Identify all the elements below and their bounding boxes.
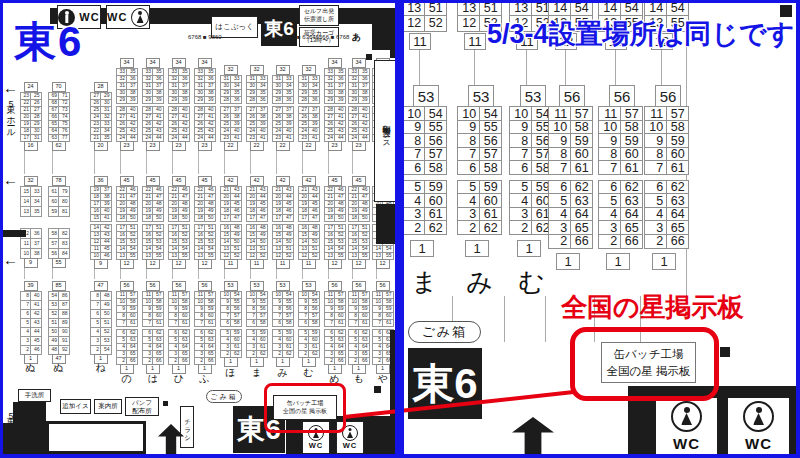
booth-cell-pair: 1747 <box>220 214 241 221</box>
booth-cell-pair: 2939 <box>194 96 215 103</box>
booth-header-cell: 34 <box>120 58 134 68</box>
booth-cell-pair: 2444 <box>168 134 189 141</box>
row-kana-label: の <box>116 372 137 386</box>
booth-column-section: 4221432044194518461747164815491450135112… <box>298 176 319 269</box>
booth-cell-pair: 5981 <box>48 206 69 216</box>
booth-cell: 12 <box>457 15 480 32</box>
booth-header-cell: 53 <box>468 85 494 107</box>
booth-cell: 7 <box>548 160 571 175</box>
booth-header-cell: 45 <box>120 176 134 186</box>
booth-cell: 61 <box>620 160 643 175</box>
booth-header-cell: 56 <box>120 281 134 291</box>
booth-cell-pair: 658 <box>458 161 501 175</box>
hall5-label: 東5ホール <box>4 98 17 134</box>
booth-footer-cell: 22 <box>224 141 238 151</box>
booth-cell: 46 <box>30 345 42 355</box>
booth-cell-pair: 1054 <box>458 107 501 121</box>
booth-cell-pair: 559 <box>403 181 446 195</box>
booth-header-cell: 70 <box>52 82 66 92</box>
booth-column-section: 3433353236313730382939284027412642254324… <box>116 58 137 151</box>
booth-header-cell: 28 <box>94 82 108 92</box>
booth-cell: 7 <box>644 160 667 175</box>
booth-cell: 58 <box>424 160 447 175</box>
row-kana-label: ひ <box>168 372 189 386</box>
booth-cell-pair: 262 <box>246 350 267 357</box>
booth-cell-pair: 662 <box>599 181 642 195</box>
west-arrow-1: ← <box>3 80 18 95</box>
star-board-callout: 全国の星掲示板 <box>561 290 744 325</box>
booth-column-section: 56115710589598607616625634643652661 <box>348 281 369 374</box>
booth-cell-pair: 2444 <box>116 134 137 141</box>
booth-header-cell: 56 <box>609 85 635 107</box>
booth-cell: 62 <box>424 220 447 235</box>
column-connector-line <box>565 49 566 85</box>
booth-header-cell: 34 <box>146 58 160 68</box>
column-connector-line <box>419 49 420 85</box>
booth-cell-pair: 1252 <box>403 16 446 31</box>
booth-cell-pair: 955 <box>510 121 553 135</box>
booth-cell-pair: 2341 <box>220 134 241 141</box>
booth-column-section: 5310549558567576585594603612621 <box>220 281 241 367</box>
booth-cell-pair: 959 <box>599 134 642 148</box>
booth-column-section: 4522462147204819491850175116521553145413… <box>324 176 345 269</box>
booth-cell-pair: 658 <box>510 161 553 175</box>
booth-footer-cell: 12 <box>172 259 186 269</box>
booth-column-section: 4221432044194518461747164815491450135112… <box>272 176 293 269</box>
booth-cell: 66 <box>666 234 689 249</box>
booth-cell-pair: 1355 <box>194 252 215 259</box>
row-kana-label: も <box>348 372 369 386</box>
column-connector-line <box>474 49 475 85</box>
booth-single-cell: 1 <box>556 253 580 270</box>
booth-cell-pair: 959 <box>549 134 592 148</box>
booth-footer-cell: 11 <box>224 259 238 269</box>
booth-cell-pair: 5684 <box>48 248 69 258</box>
booth-cell-pair: 1058 <box>549 121 592 135</box>
booth-header-cell: 32 <box>276 65 290 75</box>
booth-cell-pair: 365 <box>599 221 642 235</box>
booth-cell: 2 <box>457 220 480 235</box>
booth-cell: 62 <box>479 220 502 235</box>
booth-column-section: 56115710589598607616625634643652661 <box>168 281 189 374</box>
booth-cell-pair: 1157 <box>549 107 592 121</box>
booth-cell-pair: 460 <box>458 194 501 208</box>
booth-single-cell: 11 <box>409 33 431 50</box>
booth-cell-pair: 2836 <box>298 96 319 103</box>
booth-cell: 6 <box>457 160 480 175</box>
pillar-dot <box>366 54 372 60</box>
booth-cell-pair: 761 <box>549 161 592 175</box>
pillar-dot <box>163 401 168 406</box>
booth-footer-cell: 12 <box>198 259 212 269</box>
booth-cell-pair: 563 <box>549 194 592 208</box>
booth-cell-pair: 6179 <box>48 186 69 196</box>
row-kana-label: ぬ <box>48 361 69 375</box>
booth-cell: 61 <box>666 160 689 175</box>
booth-cell-pair: 254 <box>90 345 111 354</box>
bottom-left-wall-b <box>0 423 46 454</box>
booth-footer-cell: 22 <box>250 141 264 151</box>
booth-footer-cell: 12 <box>352 259 366 269</box>
booth-column-section: 7861796080598158825783568455 <box>48 176 69 268</box>
booth-cell-pair: 658 <box>403 161 446 175</box>
booth-cell-pair: 2135 <box>90 134 111 141</box>
section-connector-line <box>328 150 329 174</box>
booth-cell-pair: 1058 <box>599 121 642 135</box>
pillar-dot <box>720 347 730 357</box>
booth-column-section: 4522462147204819491850175116521553145413… <box>348 176 369 269</box>
booth-cell-pair: 1850 <box>324 214 345 221</box>
booth-cell: 92 <box>58 345 70 355</box>
booth-cell-pair: 1434 <box>20 196 41 206</box>
booth-column-section: 3433353236313730382939284027412642254324… <box>142 58 163 151</box>
booth-column-section: 4221432044194518461747164815491450135112… <box>246 176 267 269</box>
booth-cell-pair: 856 <box>403 134 446 148</box>
booth-cell-pair: 246 <box>20 345 41 354</box>
entrance-arrow-right <box>512 417 554 454</box>
booth-cell-pair: 262 <box>458 221 501 235</box>
booth-cell-pair: 2836 <box>272 96 293 103</box>
booth-cell-pair: 761 <box>645 161 688 175</box>
booth-column-section: 3231333034293528362737263825392440234122 <box>220 65 241 151</box>
booth-header-cell: 53 <box>302 281 316 291</box>
booth-column-section: 3231333034293528362737263825392440234122 <box>272 65 293 151</box>
booth-column-section: 4221432044194518461747164815491450135112… <box>220 176 241 269</box>
booth-header-cell: 34 <box>352 58 366 68</box>
west-arrow-3: ← <box>3 252 18 267</box>
booth-single-cell: 11 <box>464 33 486 50</box>
booth-cell-pair: 563 <box>645 194 688 208</box>
booth-column-section: 56115710589598607616625634643652661 <box>142 281 163 374</box>
booth-cell-pair: 1355 <box>168 252 189 259</box>
booth-cell-pair: 761 <box>116 319 137 326</box>
hakobukku-label: はこぶっく <box>215 22 253 32</box>
booth-cell: 6 <box>402 160 425 175</box>
booth-cell-pair: 662 <box>645 181 688 195</box>
booth-cell: 61 <box>570 160 593 175</box>
booth-header-cell: 53 <box>224 281 238 291</box>
booth-header-cell: 45 <box>352 176 366 186</box>
booth-cell-pair: 2939 <box>348 96 369 103</box>
pamphlet-desk: パンフ 配布所 <box>125 397 159 416</box>
booth-footer-cell: 12 <box>120 259 134 269</box>
setup-note: 5/3-4設置場所は同じです <box>487 16 794 52</box>
top-booth-strip-left: 6768 ■ 9860 <box>188 34 222 40</box>
wc-label: WC <box>309 441 324 450</box>
booth-header-cell: 78 <box>52 176 66 186</box>
self-shipping-desk: セルフ出発 伝票渡し所 <box>299 5 339 26</box>
section-connector-line <box>276 150 277 174</box>
booth-cell-pair: 1046 <box>90 252 111 259</box>
booth-footer-cell: 11 <box>276 259 290 269</box>
booth-cell-pair: 1454 <box>645 1 688 16</box>
booth-header-cell: 32 <box>250 65 264 75</box>
booth-cell-pair: 266 <box>549 235 592 249</box>
booth-header-cell: 56 <box>172 281 186 291</box>
corridor-room <box>46 421 146 454</box>
booth-cell-pair: 1335 <box>20 206 41 216</box>
booth-cell-pair: 361 <box>403 208 446 222</box>
booth-cell-pair: 1137 <box>20 238 41 248</box>
booth-cell-pair: 365 <box>645 221 688 235</box>
extra-chairs-label: 追加イス <box>62 402 88 411</box>
frame-right <box>796 0 800 458</box>
booth-cell-pair: 559 <box>510 181 553 195</box>
booth-cell-pair: 563 <box>599 194 642 208</box>
west-arrow-2: ← <box>3 172 18 187</box>
booth-cell-pair: 1252 <box>272 252 293 259</box>
pamphlet-line1: パンフ <box>132 399 152 407</box>
print-material-booth: 印刷物搬入ブース <box>374 60 396 202</box>
booth-cell-pair: 464 <box>645 208 688 222</box>
section-connector-line <box>352 150 353 174</box>
booth-header-cell: 53 <box>520 85 546 107</box>
booth-cell-pair: 1747 <box>298 214 319 221</box>
booth-cell: 7 <box>598 160 621 175</box>
wc-room-right-1: WC <box>656 398 717 454</box>
booth-cell-pair: 5882 <box>48 228 69 238</box>
top-booth-strip-right: 8182 ■ 63646566 ■ 6768 <box>282 34 349 40</box>
booth-column-body: 10549558567576585594603612621み <box>458 107 501 300</box>
booth-cell-pair: 757 <box>458 148 501 162</box>
highlight-frame-left <box>264 383 346 433</box>
booth-footer-cell: 12 <box>146 259 160 269</box>
row-kana-label: み <box>272 366 293 380</box>
section-connector-line <box>146 150 147 174</box>
booth-footer-cell: 9 <box>94 259 108 269</box>
booth-column-section: 5310549558567576585594603612621 <box>272 281 293 367</box>
trash-label: ごみ箱 <box>422 323 468 341</box>
booth-cell-pair: 266 <box>324 357 345 364</box>
booth-column-section: 3619371838173916401541144213431244114510… <box>90 176 111 269</box>
booth-cell-pair: 1252 <box>246 252 267 259</box>
booth-header-cell: 34 <box>328 58 342 68</box>
wc-room-right-2: WC <box>728 398 789 454</box>
booth-footer-cell: 23 <box>328 141 342 151</box>
booth-column-section: 56115710589598607616625634643652661 <box>116 281 137 374</box>
booth-column-section: 56115710589598607616625634643652661 <box>324 281 345 374</box>
booth-cell-pair: 856 <box>510 134 553 148</box>
row-kana-label: み <box>458 265 501 300</box>
booth-cell-pair: 1747 <box>246 214 267 221</box>
row-kana-label: ね <box>90 361 111 375</box>
booth-cell-pair: 955 <box>458 121 501 135</box>
pamphlet-line2: 配布所 <box>132 407 152 415</box>
booth-header-cell: 85 <box>52 281 66 291</box>
booth-cell-pair: 1533 <box>20 186 41 196</box>
booth-footer-cell: 11 <box>302 259 316 269</box>
booth-footer-cell: 16 <box>24 141 38 151</box>
booth-column-section: 478487496505514523532541 <box>90 281 111 364</box>
wc-label: WC <box>745 435 772 452</box>
booth-cell-pair: 464 <box>599 208 642 222</box>
booth-cell-pair: 6377 <box>48 134 69 141</box>
booth-cell-pair: 2836 <box>246 96 267 103</box>
booth-cell-pair: 856 <box>458 134 501 148</box>
booth-single-cell: 1 <box>410 240 434 257</box>
booth-cell-pair: 262 <box>272 350 293 357</box>
booth-column-section: 3231333034293528362737263825392440234122 <box>246 65 267 151</box>
booth-cell-pair: 1252 <box>298 252 319 259</box>
booth-header-cell: 42 <box>302 176 316 186</box>
booth-cell-pair: 266 <box>645 235 688 249</box>
row-kana-label: ま <box>246 366 267 380</box>
row-kana-label: ま <box>403 265 446 300</box>
booth-header-cell: 45 <box>172 176 186 186</box>
booth-column-top: 13511252 <box>403 1 446 31</box>
self-shipping-line2: 伝票渡し所 <box>304 16 334 23</box>
booth-cell-pair: 1351 <box>458 1 501 16</box>
booth-cell-pair: 1054 <box>510 107 553 121</box>
booth-cell-pair: 262 <box>403 221 446 235</box>
booth-cell-pair: 1731 <box>20 134 41 141</box>
booth-header-cell: 47 <box>94 281 108 291</box>
booth-column-section: 3433353236313730382939284027412642254324… <box>348 58 369 151</box>
booth-cell-pair: 1054 <box>403 107 446 121</box>
booth-cell-pair: 2341 <box>246 134 267 141</box>
booth-column-section: 3433353236313730382939284027412642254324… <box>194 58 215 151</box>
booth-cell: 2 <box>644 234 667 249</box>
booth-header-cell: 56 <box>146 281 160 291</box>
booth-header-cell: 56 <box>198 281 212 291</box>
booth-cell-pair: 1850 <box>348 214 369 221</box>
booth-cell-pair: 460 <box>510 194 553 208</box>
booth-cell-pair: 1351 <box>510 1 553 16</box>
booth-cell-pair: 266 <box>599 235 642 249</box>
hall-sign-top: 東6 <box>261 12 297 46</box>
booth-cell-pair: 1058 <box>645 121 688 135</box>
trash-area-right: ごみ箱 <box>408 321 481 343</box>
column-connector-line <box>661 49 662 85</box>
highlight-frame-right <box>570 327 719 401</box>
row-kana-label: む <box>510 265 553 300</box>
booth-cell-pair: 1355 <box>372 252 393 259</box>
booth-column-section: 24232522262127202819291830173116 <box>20 82 41 151</box>
booth-footer-cell: 12 <box>328 259 342 269</box>
booth-header-cell: 45 <box>328 176 342 186</box>
booth-column-body: 10549558567576585594603612621む <box>510 107 553 300</box>
flyer-rack: チラシ <box>180 406 194 448</box>
booth-column-body: 115710589598607616625634643652661 <box>599 107 642 270</box>
booth-cell: 2 <box>598 234 621 249</box>
booth-cell-pair: 662 <box>549 181 592 195</box>
booth-cell-pair: 2939 <box>168 96 189 103</box>
booth-cell-pair: 761 <box>599 161 642 175</box>
booth-column-section: 5310549558567576585594603612621 <box>246 281 267 367</box>
frame-left <box>0 0 3 458</box>
booth-header-cell: 53 <box>276 281 290 291</box>
booth-cell-pair: 262 <box>220 350 241 357</box>
booth-cell-pair: 2444 <box>348 134 369 141</box>
booth-cell-pair: 2836 <box>220 96 241 103</box>
booth-column-section: 3231333034293528362737263825392440234122 <box>298 65 319 151</box>
booth-column-section: 321533143413351236113710389 <box>20 176 41 268</box>
booth-column-body: 10549558567576585594603612621ま <box>403 107 446 300</box>
booth-cell: 66 <box>620 234 643 249</box>
booth-cell-pair: 266 <box>142 357 163 364</box>
information-label: 案内所 <box>98 402 118 411</box>
booth-cell-pair: 2341 <box>272 134 293 141</box>
booth-cell-pair: 2444 <box>194 134 215 141</box>
booth-column-section: 4522462147204819491850175116521553145413… <box>168 176 189 269</box>
column-connector-line <box>526 49 527 85</box>
booth-cell-pair: 761 <box>372 319 393 326</box>
booth-cell: 12 <box>402 15 425 32</box>
booth-cell: 38 <box>30 248 42 259</box>
booth-single-cell: 1 <box>606 253 630 270</box>
booth-footer-cell: 22 <box>276 141 290 151</box>
booth-cell-pair: 860 <box>645 148 688 162</box>
booth-footer-cell: 23 <box>198 141 212 151</box>
booth-header-cell: 42 <box>224 176 238 186</box>
booth-cell-pair: 266 <box>348 357 369 364</box>
booth-single-cell: 1 <box>652 253 676 270</box>
booth-column-body: 115710589598607616625634643652661 <box>645 107 688 270</box>
booth-footer-cell: 11 <box>250 259 264 269</box>
booth-header-cell: 45 <box>198 176 212 186</box>
booth-cell: 66 <box>570 234 593 249</box>
booth-column-section: 70697168726773667465756476637762 <box>48 82 69 151</box>
booth-cell-pair: 1038 <box>20 248 41 258</box>
booth-cell: 2 <box>402 220 425 235</box>
wc-label: WC <box>343 441 358 450</box>
booth-cell-pair: 658 <box>246 319 267 326</box>
booth-cell-pair: 1850 <box>194 214 215 221</box>
booth-column-section: 4522462147204819491850175116521553145413… <box>194 176 215 269</box>
booth-cell-pair: 262 <box>510 221 553 235</box>
aisle-gap <box>48 216 69 228</box>
aisle-guide-line <box>545 296 546 342</box>
print-material-label: 印刷物搬入ブース <box>380 118 391 144</box>
booth-cell-pair: 266 <box>194 357 215 364</box>
trash-label: ごみ箱 <box>210 392 237 402</box>
booth-footer-cell: 22 <box>302 141 316 151</box>
booth-cell: 84 <box>58 248 70 259</box>
booth-footer-cell: 12 <box>376 259 390 269</box>
booth-cell-pair: 2341 <box>298 134 319 141</box>
booth-cell-pair: 5783 <box>48 238 69 248</box>
booth-cell-pair: 761 <box>348 319 369 326</box>
booth-cell-pair: 959 <box>645 134 688 148</box>
booth-column-section: 56115710589598607616625634643652661 <box>194 281 215 374</box>
booth-column-section: 3433353236313730382939284027412642254324… <box>168 58 189 151</box>
booth-cell-pair: 1252 <box>220 252 241 259</box>
east-pillar-block <box>376 204 397 244</box>
section-connector-line <box>224 150 225 174</box>
booth-footer-cell: 23 <box>120 141 134 151</box>
booth-cell-pair: 761 <box>168 319 189 326</box>
booth-single-cell: 1 <box>465 240 489 257</box>
booth-footer-cell: 23 <box>352 141 366 151</box>
booth-cell-pair: 757 <box>510 148 553 162</box>
booth-cell-pair: 860 <box>549 148 592 162</box>
booth-cell-pair: 4892 <box>48 345 69 354</box>
booth-column-section: 3433353236313730382939284027412642254324… <box>324 58 345 151</box>
information-desk: 案内所 <box>94 399 122 414</box>
aisle-gap <box>20 216 41 228</box>
booth-cell: 6 <box>509 160 532 175</box>
booth-header-cell: 39 <box>24 281 38 291</box>
female-icon <box>131 8 149 27</box>
booth-header-cell: 32 <box>224 65 238 75</box>
booth-footer-cell: 62 <box>52 141 66 151</box>
west-door-wall <box>0 230 26 237</box>
booth-column-section: 4522462147204819491850175116521553145413… <box>142 176 163 269</box>
booth-cell-pair: 2939 <box>116 96 137 103</box>
extra-chairs: 追加イス <box>60 399 91 414</box>
booth-cell-pair: 955 <box>403 121 446 135</box>
booth-header-cell: 56 <box>655 85 681 107</box>
